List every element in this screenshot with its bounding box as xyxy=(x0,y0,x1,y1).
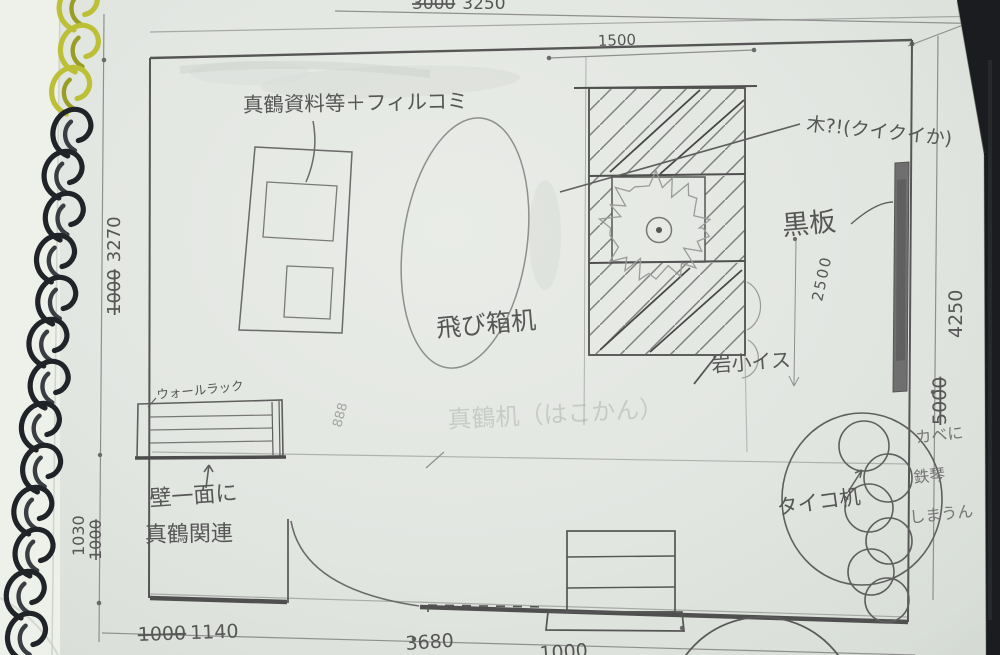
cabinet-leader-line xyxy=(306,121,315,182)
cabinet-upper-box xyxy=(263,182,337,241)
dim-bottom-left-label: 10001140 xyxy=(137,620,238,646)
dim-top-label: 30003250 xyxy=(412,0,506,14)
cabinet-lower-box xyxy=(284,266,333,319)
taiko-label: タイコ机 xyxy=(775,484,862,519)
materials-cabinet xyxy=(239,121,352,333)
wall-face-label-1: 壁一面に xyxy=(149,481,239,512)
dim-left-label: 10003270 xyxy=(104,216,125,315)
dim-bottom-mid2-label: 1000 xyxy=(539,640,589,655)
wall-left xyxy=(149,58,150,598)
handwritten-labels: 30003250 1500 真鶴資料等＋フィルコミ 木?!(クイクイか) 黒板 … xyxy=(69,0,974,655)
guide-line-top xyxy=(150,16,985,32)
blackboard-bar xyxy=(851,162,909,392)
margin-note-1: カベに xyxy=(914,423,964,447)
dim-left-lower-old: 1000 xyxy=(86,519,105,560)
planter-box xyxy=(560,86,800,384)
dimension-line-2500 xyxy=(794,240,796,386)
vaulting-box-label: 飛び箱机 xyxy=(435,305,537,343)
margin-note-3: しまうん xyxy=(908,501,974,527)
margin-note-2: 鉄琴 xyxy=(912,465,946,487)
small-tick xyxy=(426,452,444,468)
materials-label: 真鶴資料等＋フィルコミ xyxy=(243,89,468,117)
dim-right-label: 4250 xyxy=(945,290,967,338)
wall-face-label-2: 真鶴関連 xyxy=(145,521,233,548)
erased-scribble: 888 xyxy=(330,401,351,429)
wood-question-label: 木?!(クイクイか) xyxy=(805,113,953,150)
door xyxy=(288,519,419,606)
dimension-line-1500 xyxy=(549,50,754,58)
floorplan-sketch: 30003250 1500 真鶴資料等＋フィルコミ 木?!(クイクイか) 黒板 … xyxy=(0,0,1000,655)
dimension-lines xyxy=(99,11,1000,655)
notebook-page: 30003250 1500 真鶴資料等＋フィルコミ 木?!(クイクイか) 黒板 … xyxy=(0,0,1000,655)
blackboard-leader-line xyxy=(851,202,893,224)
dim-1500-label: 1500 xyxy=(598,31,637,50)
blackboard-label: 黒板 xyxy=(781,206,837,242)
erased-note: 真鶴机（はこかん） xyxy=(447,395,664,434)
wall-rack-label: ウォールラック xyxy=(156,378,245,402)
chair-circle xyxy=(865,578,909,622)
guide-line-vertical xyxy=(584,56,586,425)
chair-circle xyxy=(864,454,912,502)
wall-bottom-left xyxy=(150,598,287,602)
dim-3680-label: 3680 xyxy=(405,630,455,655)
wall-rack-shape xyxy=(135,398,286,488)
wall-top xyxy=(150,40,912,58)
dim-2500-label: 2500 xyxy=(808,254,835,303)
door-swing-arc xyxy=(291,521,419,606)
rock-stools-label: 岩小イス xyxy=(711,348,792,377)
dim-right-struck: 5000 xyxy=(929,377,951,425)
